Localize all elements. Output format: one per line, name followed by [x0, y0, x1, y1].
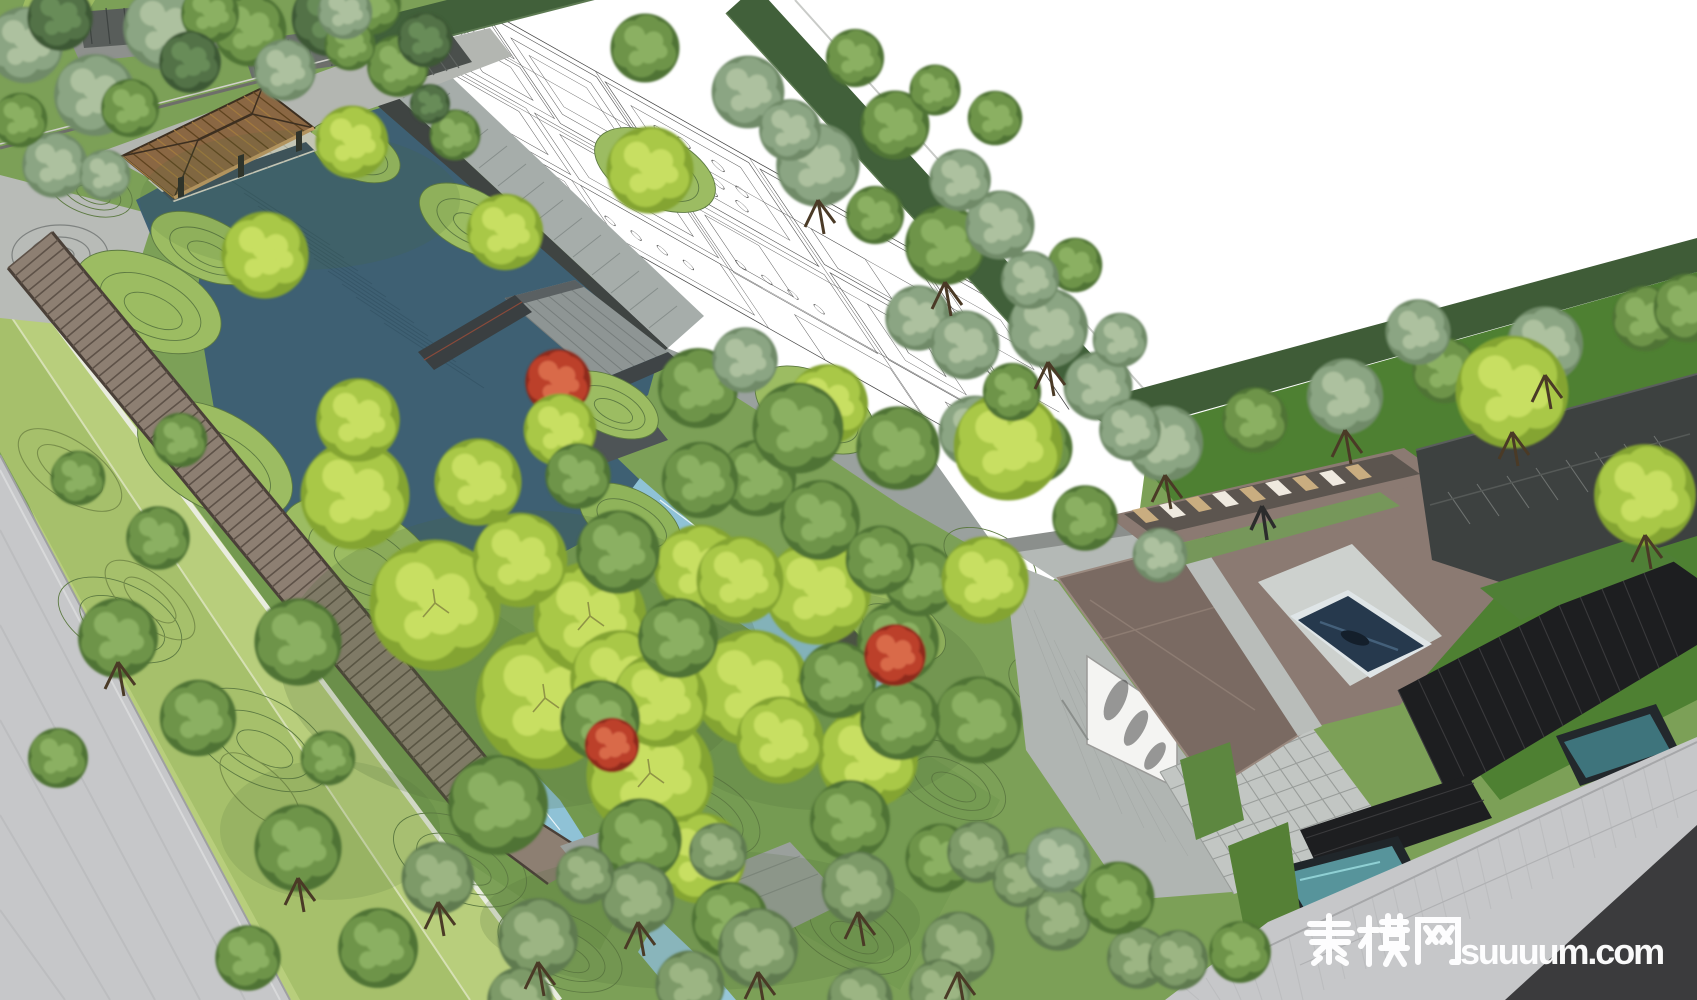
svg-text:suuuum.com: suuuum.com [1460, 931, 1663, 972]
